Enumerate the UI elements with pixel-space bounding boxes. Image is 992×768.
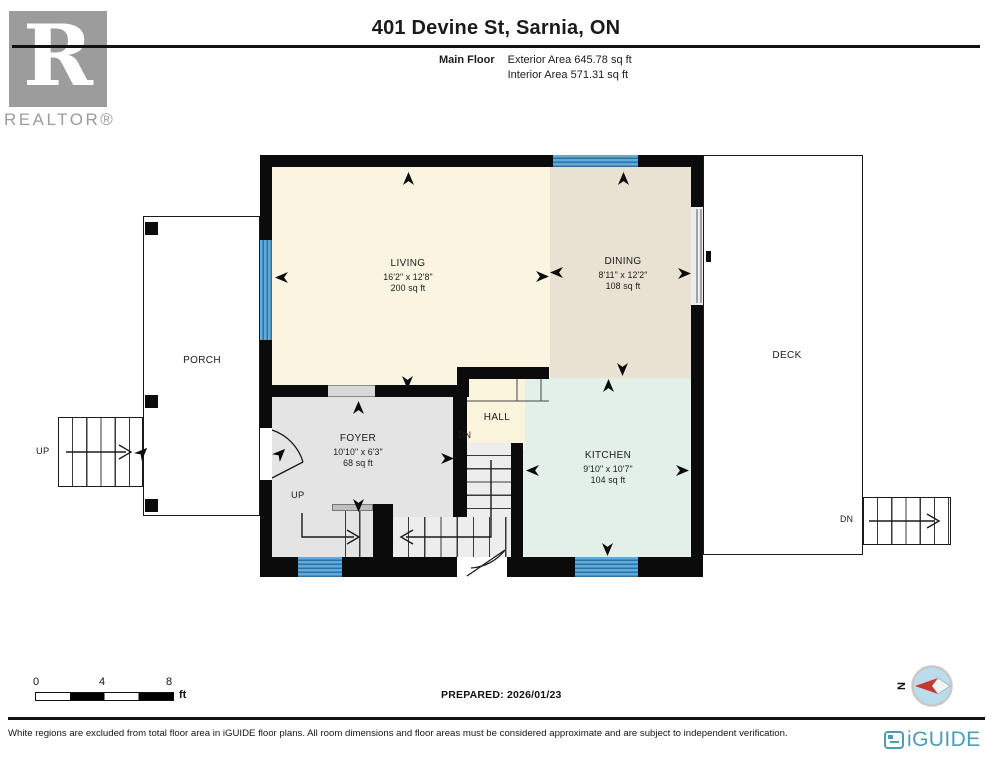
wall-jog [457,367,469,397]
dining-name: DINING [548,256,698,269]
iguide-brand-text: iGUIDE [907,728,981,752]
wall-stair-divider [373,504,393,577]
floor-label: Main Floor [439,54,495,66]
living-sqft: 200 sq ft [333,283,483,294]
interior-area: Interior Area 571.31 sq ft [508,69,632,81]
living-room-label: LIVING 16'2" x 12'8" 200 sq ft [333,258,483,294]
hall-dn-label: DN [458,430,471,440]
floor-plan-page: R REALTOR® 401 Devine St, Sarnia, ON Mai… [0,0,992,768]
compass-icon [913,667,952,706]
window-living-left [260,240,272,340]
porch-post [145,395,158,408]
disclaimer-text: White regions are excluded from total fl… [8,728,868,739]
kitchen-sqft: 104 sq ft [533,475,683,486]
wall-kitchen-left [511,443,523,577]
stairs-up-flight [332,508,373,557]
scale-tick-4: 4 [99,676,105,688]
foyer-up-label: UP [291,490,305,500]
stairs-landing-edge [332,504,373,511]
front-exterior-stairs [58,417,143,487]
foyer-sqft: 68 sq ft [283,458,433,469]
header-divider-line [12,45,980,48]
hall-label: HALL [422,412,572,425]
prepared-date: PREPARED: 2026/01/23 [441,689,562,701]
scale-bar [35,692,174,701]
iguide-camera-icon [884,731,904,749]
kitchen-name: KITCHEN [533,450,683,463]
wall-hall-top [457,367,549,379]
area-summary: Exterior Area 645.78 sq ft Interior Area… [508,54,632,84]
exterior-area: Exterior Area 645.78 sq ft [508,54,632,66]
realtor-logo: R [9,11,107,107]
porch-label: PORCH [127,355,277,368]
dining-dimensions: 8'11" x 12'2" [548,270,698,281]
dining-sqft: 108 sq ft [548,281,698,292]
porch-post [145,499,158,512]
stairs-down-horizontal-flight [393,517,511,557]
realtor-logo-text: REALTOR® [4,110,134,130]
foyer-dimensions: 10'10" x 6'3" [283,447,433,458]
stairs-down-vertical-flight [467,443,511,517]
page-title: 401 Devine St, Sarnia, ON [0,17,992,40]
porch-post [145,222,158,235]
scale-tick-8: 8 [166,676,172,688]
window-kitchen-bottom [575,557,638,577]
foyer-name: FOYER [283,433,433,446]
living-foyer-opening [328,385,375,397]
kitchen-label: KITCHEN 9'10" x 10'7" 104 sq ft [533,450,683,486]
foyer-label: FOYER 10'10" x 6'3" 68 sq ft [283,433,433,469]
iguide-logo: iGUIDE [884,728,981,752]
realtor-logo-letter: R [23,14,93,98]
footer-divider-line [8,717,985,720]
window-foyer-bottom [298,557,342,577]
living-dimensions: 16'2" x 12'8" [333,272,483,283]
deck-stairs-dn-label: DN [840,514,853,524]
back-door-gap [457,557,507,577]
deck-exterior-stairs [863,497,951,545]
deck-label: DECK [712,350,862,363]
living-name: LIVING [333,258,483,271]
kitchen-dimensions: 9'10" x 10'7" [533,464,683,475]
front-stairs-up-label: UP [36,446,50,456]
front-door-gap [260,428,272,480]
compass-north-label: N [896,682,908,690]
scale-unit: ft [179,689,186,701]
window-dining-top [553,155,638,167]
scale-tick-0: 0 [33,676,39,688]
floor-summary: Main Floor Exterior Area 645.78 sq ft In… [439,54,632,84]
dining-room-label: DINING 8'11" x 12'2" 108 sq ft [548,256,698,292]
